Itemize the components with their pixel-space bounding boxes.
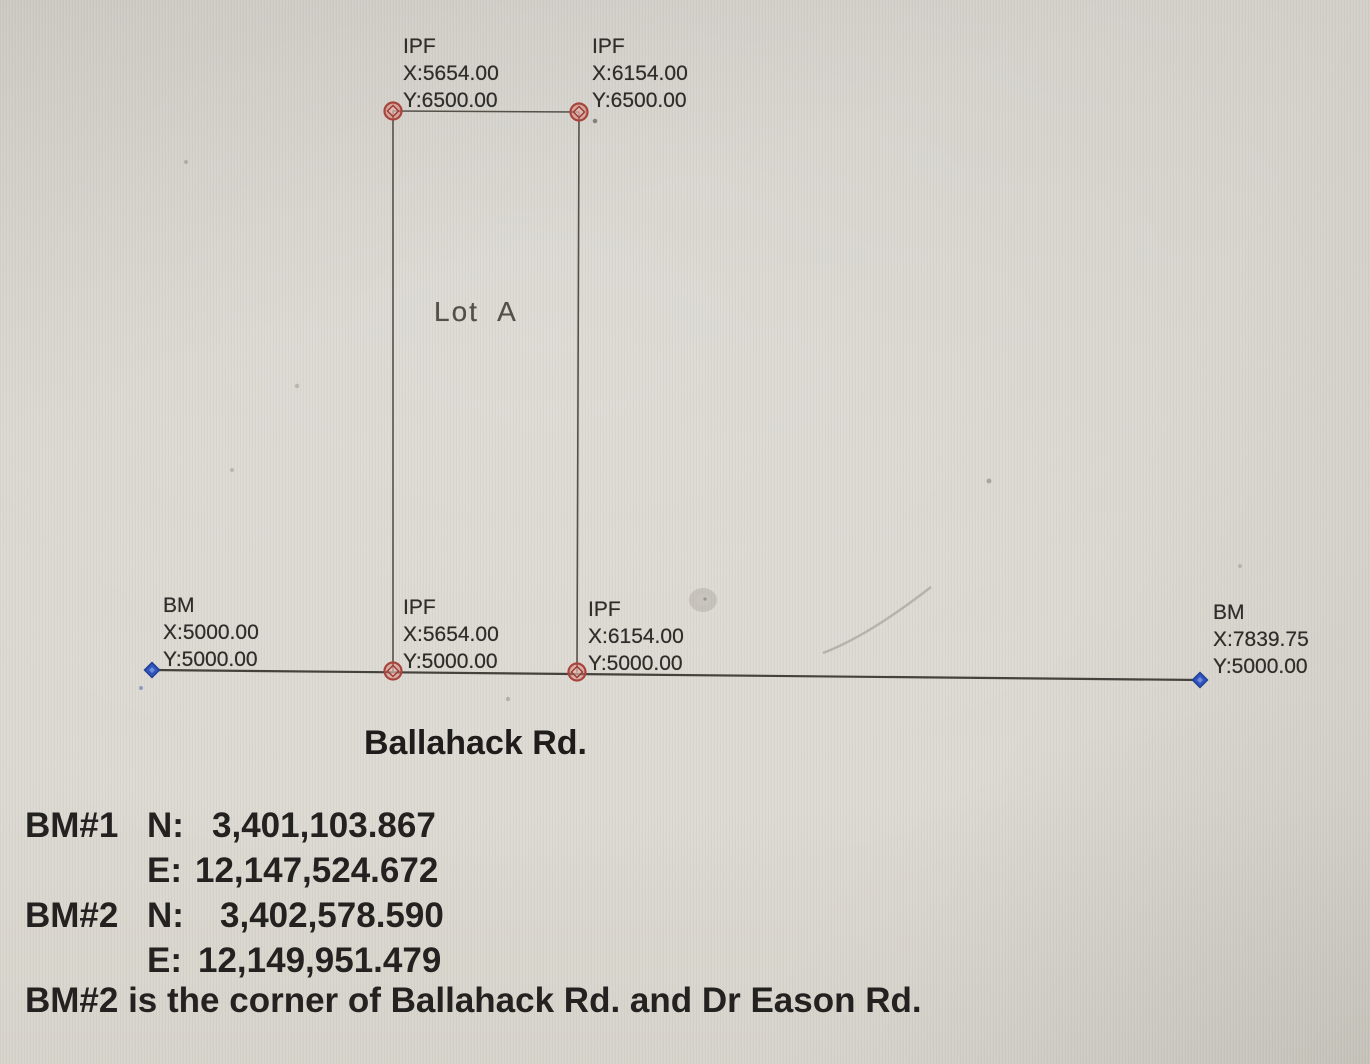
point-x: X:5000.00 <box>163 619 259 646</box>
note-tag: BM#1 <box>25 806 147 846</box>
point-label-bm-west: BM X:5000.00 Y:5000.00 <box>163 592 259 673</box>
bm2-point-marker <box>1193 673 1208 688</box>
lot-a-east-boundary-line <box>577 112 579 672</box>
point-y: Y:5000.00 <box>403 648 499 675</box>
note-axis: E: <box>147 941 205 981</box>
point-x: X:5654.00 <box>403 60 499 87</box>
ipf-point-marker-northwest <box>385 103 402 120</box>
note-tag: BM#2 <box>25 896 147 936</box>
note-axis: N: <box>147 806 205 846</box>
note-row-bm1-northing: BM#1 N: 3,401,103.867 <box>25 803 444 848</box>
lot-a-boundary <box>393 111 579 672</box>
point-y: Y:5000.00 <box>1213 653 1309 680</box>
bm1-point-marker <box>145 663 160 678</box>
ipf-point-marker-northeast <box>571 104 588 121</box>
survey-sketch-photo: IPF X:5654.00 Y:6500.00 IPF X:6154.00 Y:… <box>0 0 1370 1064</box>
point-type: IPF <box>403 33 499 60</box>
point-y: Y:6500.00 <box>592 87 688 114</box>
point-type: IPF <box>592 33 688 60</box>
note-value: 12,149,951.479 <box>198 941 441 981</box>
note-row-bm1-easting: E: 12,147,524.672 <box>25 848 444 893</box>
point-type: IPF <box>403 594 499 621</box>
benchmark-notes: BM#1 N: 3,401,103.867 E: 12,147,524.672 … <box>25 803 444 983</box>
road-name-label: Ballahack Rd. <box>364 724 587 763</box>
point-x: X:6154.00 <box>592 60 688 87</box>
ipf-point-marker-southwest <box>385 663 402 680</box>
point-y: Y:6500.00 <box>403 87 499 114</box>
ipf-point-marker-southeast <box>569 664 586 681</box>
note-value: 3,401,103.867 <box>212 806 436 846</box>
paper-smudge <box>689 588 717 612</box>
point-label-bm-east: BM X:7839.75 Y:5000.00 <box>1213 599 1309 680</box>
note-row-bm2-easting: E: 12,149,951.479 <box>25 938 444 983</box>
note-value: 3,402,578.590 <box>220 896 444 936</box>
note-axis: N: <box>147 896 205 936</box>
lot-name-label: Lot A <box>434 296 518 328</box>
point-y: Y:5000.00 <box>588 650 684 677</box>
point-label-ipf-northeast: IPF X:6154.00 Y:6500.00 <box>592 33 688 114</box>
point-label-ipf-southeast: IPF X:6154.00 Y:5000.00 <box>588 596 684 677</box>
point-x: X:7839.75 <box>1213 626 1309 653</box>
point-x: X:6154.00 <box>588 623 684 650</box>
note-row-bm2-northing: BM#2 N: 3,402,578.590 <box>25 893 444 938</box>
benchmark-footnote: BM#2 is the corner of Ballahack Rd. and … <box>25 981 922 1021</box>
point-type: IPF <box>588 596 684 623</box>
point-x: X:5654.00 <box>403 621 499 648</box>
point-y: Y:5000.00 <box>163 646 259 673</box>
faint-pencil-mark <box>823 587 931 653</box>
paper-specks <box>139 119 1242 702</box>
point-label-ipf-southwest: IPF X:5654.00 Y:5000.00 <box>403 594 499 675</box>
note-value: 12,147,524.672 <box>195 851 438 891</box>
point-type: BM <box>163 592 259 619</box>
point-label-ipf-northwest: IPF X:5654.00 Y:6500.00 <box>403 33 499 114</box>
point-type: BM <box>1213 599 1309 626</box>
